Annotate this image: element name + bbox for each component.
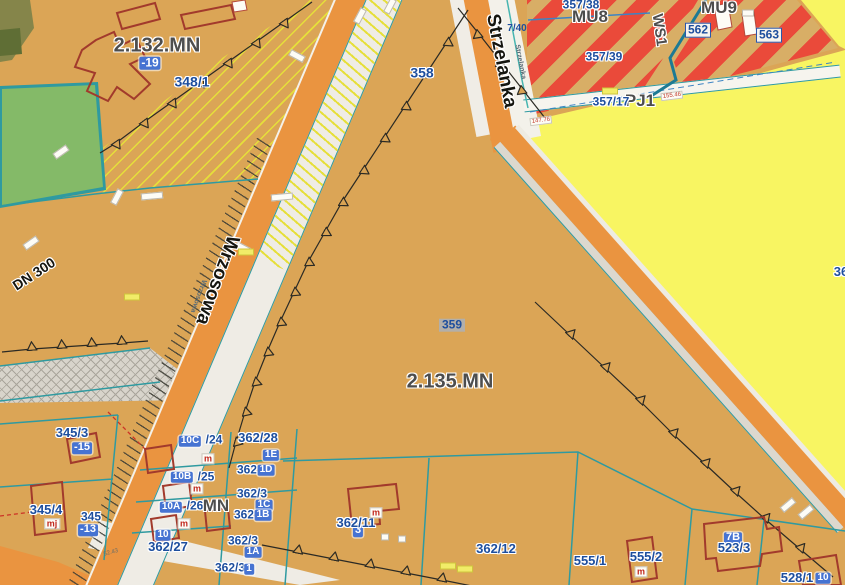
map-label-345: 345 [81, 511, 101, 524]
map-label-m: m [634, 566, 647, 577]
map-label--26: /26 [187, 500, 204, 513]
map-label-52-43: 52.43 [103, 548, 119, 558]
map-label-m: m [201, 453, 214, 464]
map-label-1d: 1D [258, 465, 275, 476]
map-label-348-1: 348/1 [174, 75, 209, 90]
map-label-ws1: WS1 [649, 13, 669, 47]
map-label-357-38: 357/38 [563, 0, 600, 11]
map-label-strzelanka: Strzelanka [513, 44, 527, 80]
map-label-10a: 10A [160, 502, 182, 513]
map-label-362: 362 [237, 464, 257, 477]
map-label-359: 359 [439, 319, 465, 332]
map-label-36: 36 [834, 265, 845, 279]
map-label-10: 10 [815, 573, 830, 584]
map-label-523-3: 523/3 [718, 541, 751, 555]
map-label-555-2: 555/2 [630, 550, 663, 564]
map-label-10c: 10C [179, 436, 201, 447]
map-label-345-4: 345/4 [30, 503, 63, 517]
map-label-555-1: 555/1 [574, 554, 607, 568]
map-label-mn: MN [203, 497, 229, 515]
map-label--25: /25 [198, 471, 215, 484]
map-label-10b: 10B [171, 472, 193, 483]
map-canvas[interactable]: 2.132.MN-19348/13583592.135.MNDN 300Wrzo… [0, 0, 845, 585]
map-label-362-12: 362/12 [476, 542, 516, 556]
map-label-2-135-mn: 2.135.MN [407, 372, 494, 393]
map-label-1: 1 [244, 564, 254, 575]
map-label-1a: 1A [245, 547, 262, 558]
map-label-357-17: 357/17 [593, 96, 630, 109]
map-label--24: /24 [206, 434, 223, 447]
map-label-563: 563 [756, 28, 782, 43]
map-label-m: m [369, 507, 382, 518]
map-label-357-39: 357/39 [586, 51, 623, 64]
map-label-528-1: 528/1 [781, 571, 814, 585]
map-label-7-40: 7/40 [507, 24, 526, 35]
map-label-562: 562 [685, 23, 711, 38]
map-label-358: 358 [410, 66, 433, 81]
map-label-362-3: 362/3 [215, 562, 245, 575]
map-label-362: 362 [234, 509, 254, 522]
map-label-mj: mj [44, 518, 60, 529]
map-label-m: m [177, 518, 190, 529]
map-label-2-132-mn: 2.132.MN [114, 36, 201, 57]
map-label-1e: 1E [263, 450, 279, 461]
map-label-345-3: 345/3 [56, 426, 89, 440]
map-label-dn-300: DN 300 [10, 255, 58, 293]
map-label-362-28: 362/28 [238, 431, 278, 445]
map-label-362-27: 362/27 [148, 540, 188, 554]
map-label--15: -15 [72, 442, 92, 454]
labels-layer: 2.132.MN-19348/13583592.135.MNDN 300Wrzo… [0, 0, 845, 585]
map-label--13: -13 [78, 524, 98, 536]
map-label-m: m [190, 483, 203, 494]
map-label-mu9: MU9 [701, 0, 737, 17]
map-label-155-46: 155.46 [660, 91, 683, 102]
map-label-147-76: 147.76 [529, 116, 552, 127]
map-label-1b: 1B [255, 510, 272, 521]
map-label--19: -19 [139, 57, 160, 70]
